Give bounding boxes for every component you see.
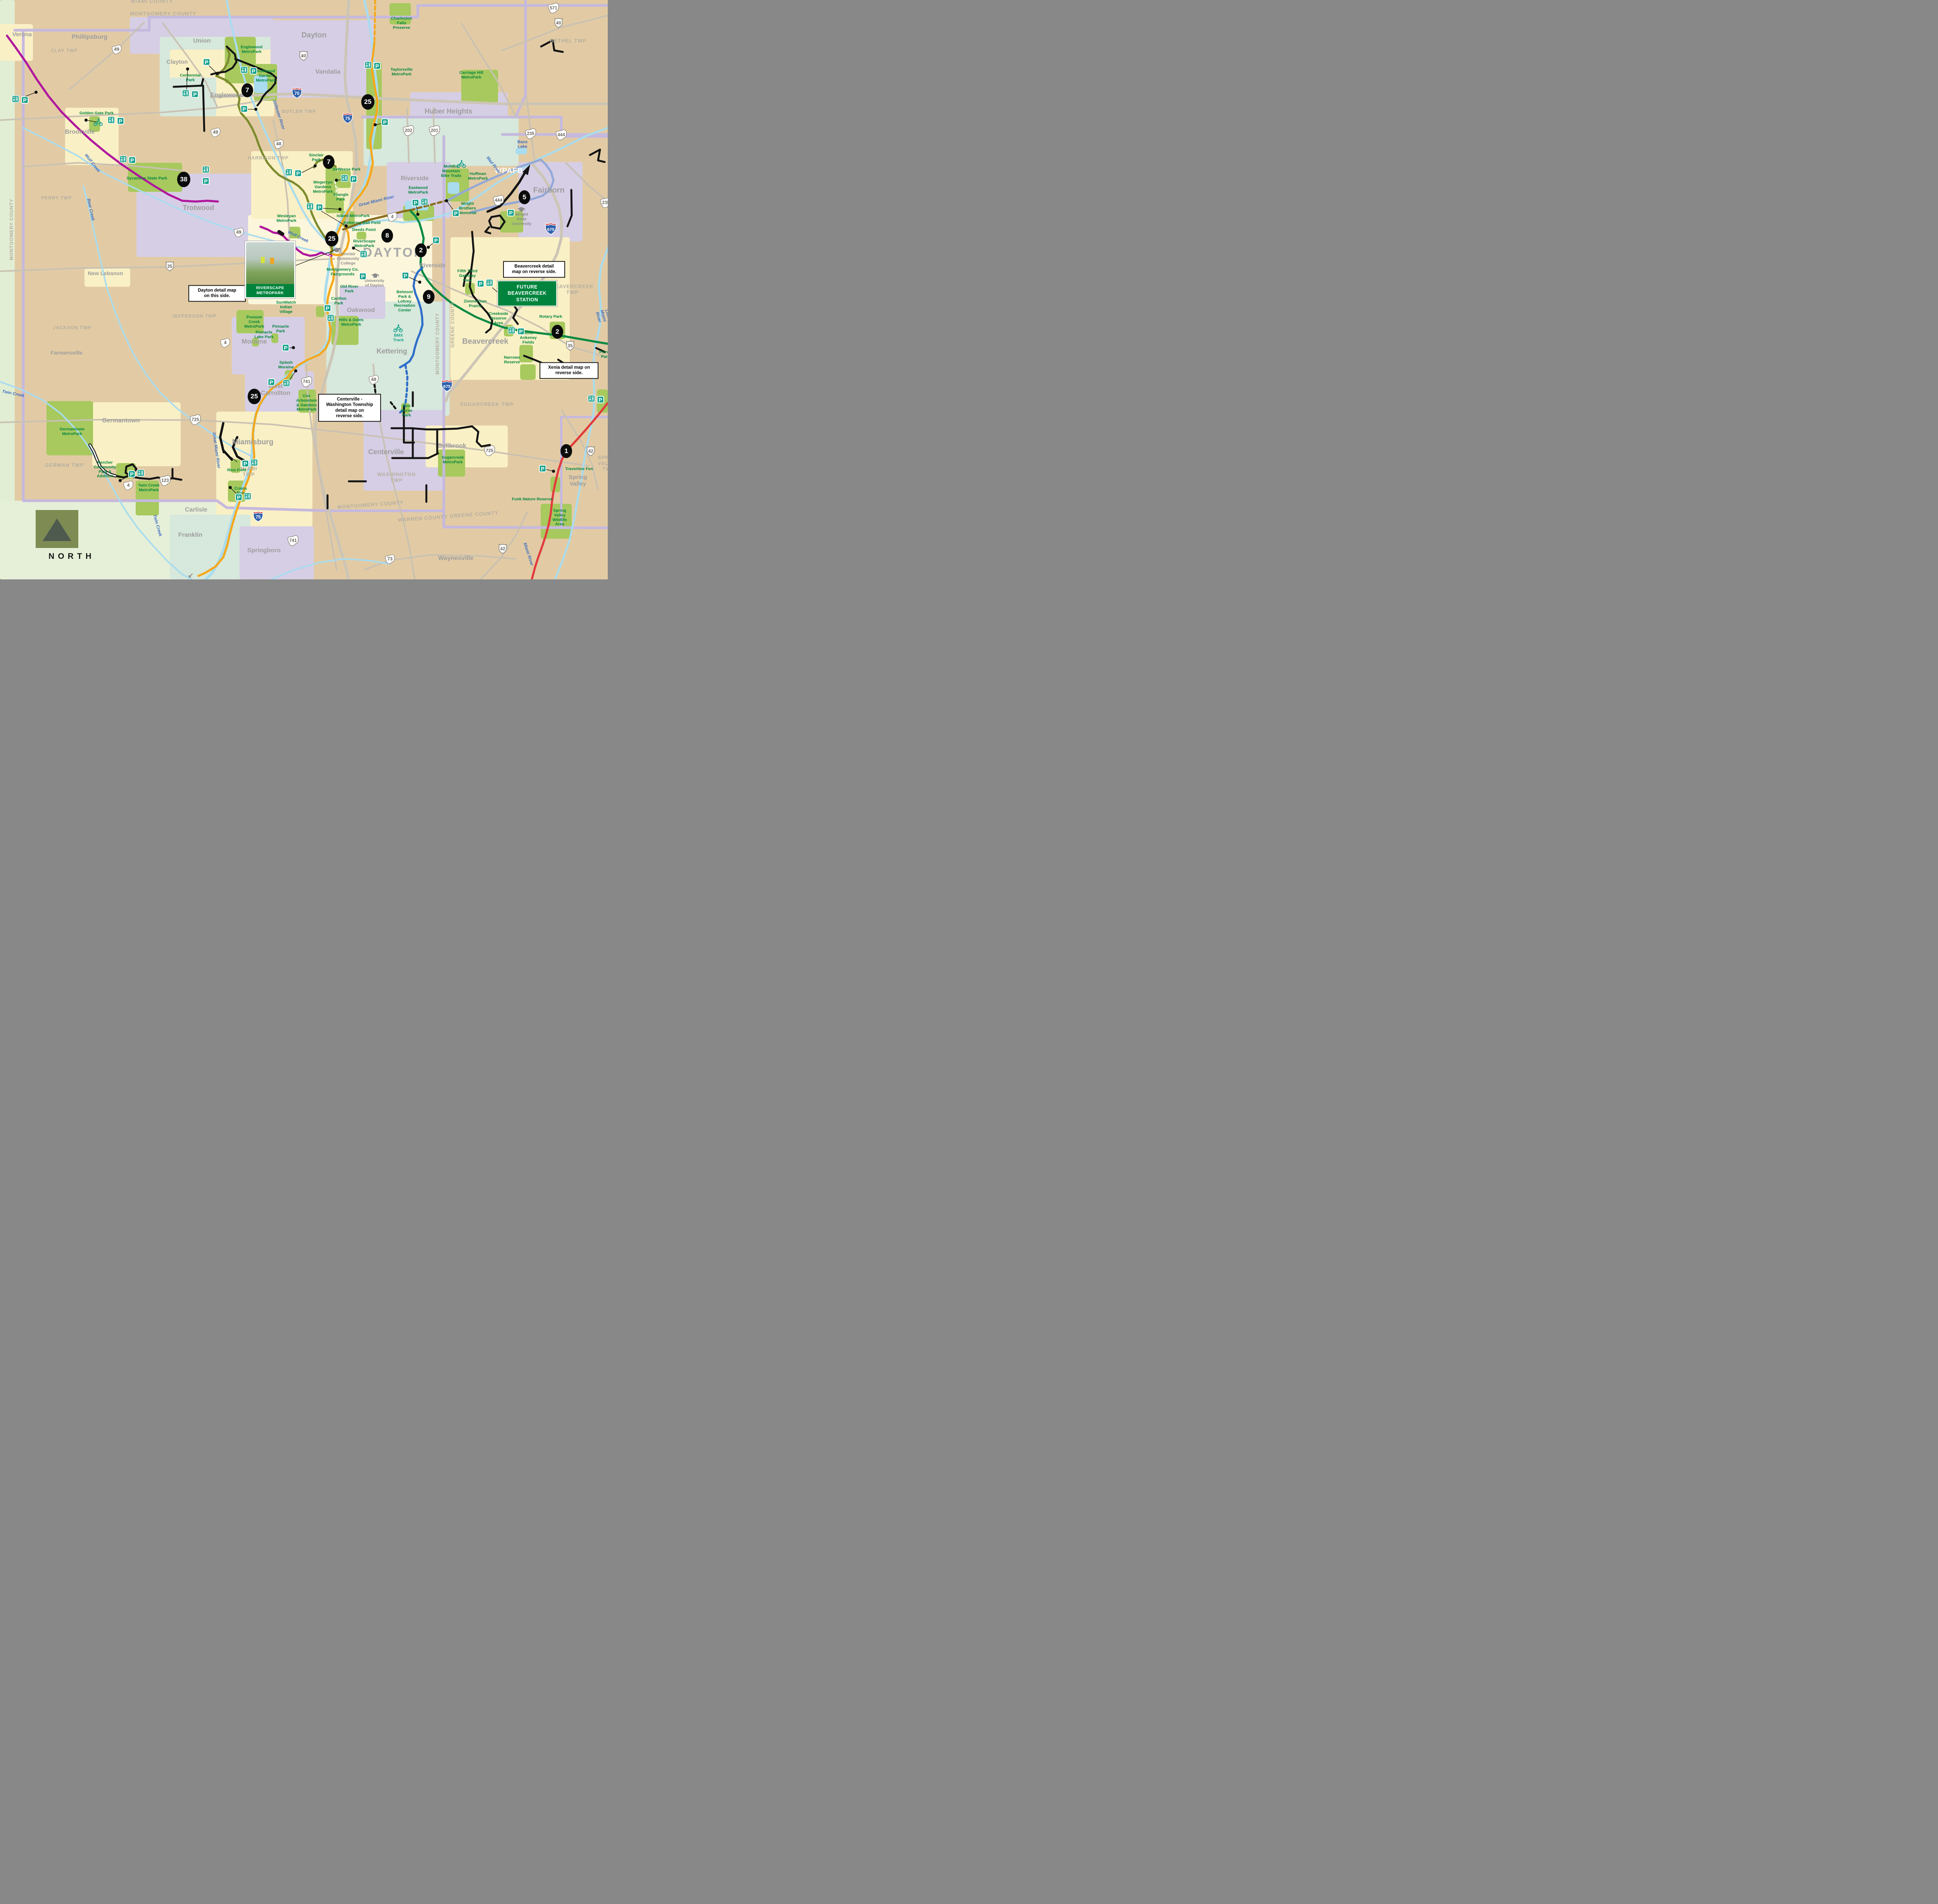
svg-text:4: 4 (224, 340, 227, 345)
trail-number-badge: 7 (241, 83, 253, 97)
map-line (172, 478, 181, 480)
svg-text:4: 4 (391, 214, 394, 219)
us-route-shield: 40 (298, 50, 309, 63)
region-patch (47, 401, 93, 455)
parking-icon: P (129, 157, 136, 164)
us-route-shield: 40 (553, 17, 564, 30)
trailhead-dot (418, 281, 421, 284)
svg-text:70: 70 (294, 91, 300, 96)
restroom-icon (108, 116, 115, 126)
state-route-shield: 73 (384, 553, 396, 567)
cyclist-figure (270, 258, 274, 264)
region-patch (92, 402, 181, 466)
state-route-shield: 49 (233, 226, 245, 240)
region-patch (136, 481, 159, 515)
trailhead-dot (416, 213, 419, 216)
parking-icon: P (203, 59, 210, 66)
parking-icon: P (477, 280, 484, 288)
parking-icon: P (359, 273, 367, 280)
trailhead-dot (292, 346, 295, 349)
state-route-shield: 201 (428, 124, 441, 139)
region-patch (316, 306, 324, 317)
trail-number-badge: 2 (415, 243, 427, 257)
svg-text:49: 49 (236, 229, 241, 235)
college-cap-icon (517, 207, 526, 214)
trailhead-dot (254, 108, 257, 111)
svg-text:75: 75 (345, 116, 350, 121)
trail-number-badge: 1 (560, 444, 572, 458)
parking-icon: P (374, 62, 381, 70)
parking-icon: P (324, 305, 331, 312)
interstate-shield: 675 (544, 221, 557, 237)
parking-icon: P (268, 379, 275, 386)
trail-number-badge: 9 (423, 290, 434, 304)
parking-icon: P (452, 210, 460, 217)
detail-map-note: Xenia detail map on reverse side. (540, 362, 598, 379)
state-route-shield: 48 (368, 374, 379, 387)
trailhead-dot (345, 224, 348, 227)
future-station-box: FUTURE BEAVERCREEK STATION (497, 281, 557, 307)
svg-text:4: 4 (127, 482, 130, 488)
restroom-icon (341, 174, 348, 184)
us-route-shield: 35 (164, 261, 175, 274)
svg-text:40: 40 (301, 53, 306, 59)
restroom-icon (120, 155, 127, 165)
restroom-icon (241, 66, 248, 76)
state-route-shield: 571 (547, 1, 560, 16)
region-patch (231, 459, 240, 473)
region-patch (450, 237, 570, 380)
state-route-shield: 4 (386, 211, 398, 224)
connect-middletown-note: ↙ CONNECT TO MIDDLETOWN (167, 567, 214, 579)
map-line (596, 348, 605, 352)
trail-number-badge: 5 (519, 190, 530, 204)
trailhead-dot (352, 246, 355, 250)
parking-icon: P (282, 344, 290, 352)
map-line (279, 232, 283, 234)
restroom-icon (283, 379, 290, 389)
trailhead-dot (294, 369, 297, 372)
trail-number-badge: 2 (552, 325, 563, 339)
svg-text:202: 202 (405, 128, 412, 133)
trailhead-dot (119, 479, 122, 482)
svg-text:235: 235 (527, 131, 535, 136)
restroom-icon (244, 493, 252, 502)
riverscape-photo: RIVERSCAPE METROPARK (245, 241, 295, 298)
trailhead-dot (338, 208, 341, 211)
map-line (203, 86, 204, 131)
detail-map-note: Dayton detail map on this side. (188, 285, 246, 302)
state-route-shield: 123 (159, 474, 172, 489)
state-route-shield: 741 (300, 375, 313, 390)
parking-icon: P (250, 67, 257, 75)
state-route-shield: 741 (286, 534, 300, 549)
interstate-shield: 75 (342, 112, 353, 126)
region-patch (357, 232, 366, 240)
region-patch (84, 268, 130, 287)
detail-map-note: Centerville - Washington Township detail… (318, 394, 381, 422)
parking-icon: P (128, 470, 136, 478)
restroom-icon (365, 61, 372, 71)
parking-icon: P (507, 209, 515, 217)
restroom-icon (12, 95, 19, 105)
svg-text:35: 35 (567, 343, 573, 348)
us-route-shield: 35 (565, 340, 576, 353)
restroom-icon (327, 314, 334, 324)
map-line (444, 511, 608, 528)
photo-caption: RIVERSCAPE METROPARK (246, 284, 294, 297)
svg-text:40: 40 (556, 20, 561, 26)
region-patch (520, 364, 536, 380)
trailhead-dot (229, 486, 232, 489)
parking-icon: P (316, 204, 323, 211)
region-patch (271, 333, 278, 343)
interstate-shield: 75 (252, 510, 264, 524)
us-route-shield: 42 (585, 446, 596, 458)
svg-text:35: 35 (167, 264, 172, 269)
region-patch (254, 76, 267, 93)
region-patch (519, 345, 533, 362)
region-patch (289, 227, 300, 238)
map-line (590, 150, 605, 162)
trail-number-badge: 8 (381, 229, 393, 243)
college-cap-icon (333, 247, 341, 255)
state-route-shield: 444 (492, 193, 505, 208)
region-patch (335, 198, 344, 213)
state-route-shield: 49 (111, 43, 122, 57)
state-route-shield: 444 (555, 128, 568, 143)
interstate-shield: 70 (291, 86, 303, 101)
region-patch (390, 3, 411, 24)
parking-icon: P (381, 119, 389, 126)
trailhead-dot (34, 91, 38, 94)
state-route-shield: 4 (219, 337, 231, 350)
parking-icon: P (539, 465, 547, 472)
map-line (485, 227, 490, 233)
mountain-bike-icon (393, 324, 403, 335)
svg-text:49: 49 (114, 47, 119, 52)
restroom-icon (251, 459, 258, 468)
trail-number-badge: 7 (323, 155, 334, 169)
trailhead-dot (84, 119, 88, 122)
parking-icon: P (242, 460, 249, 467)
mountain-bike-icon (456, 160, 466, 171)
restroom-icon (182, 90, 190, 99)
region-patch (438, 450, 465, 477)
trailhead-dot (445, 199, 448, 202)
svg-text:741: 741 (289, 538, 297, 543)
svg-text:725: 725 (191, 417, 199, 422)
trail-number-badge: 25 (248, 389, 261, 404)
svg-text:741: 741 (303, 379, 310, 384)
state-route-shield: 235 (524, 127, 537, 142)
map-line (541, 40, 563, 52)
parking-icon: P (21, 96, 29, 104)
restroom-icon (137, 469, 145, 479)
north-arrow (36, 510, 78, 548)
parking-icon: P (295, 170, 302, 177)
trailhead-dot (222, 450, 226, 453)
region-patch (252, 338, 259, 346)
svg-text:725: 725 (486, 448, 493, 453)
state-route-shield: 48 (273, 138, 284, 152)
state-route-shield: 4 (122, 479, 134, 493)
svg-text:675: 675 (443, 384, 451, 389)
trailhead-dot (427, 246, 430, 249)
region-patch (0, 0, 15, 579)
trailhead-dot (552, 470, 555, 473)
region-patch (271, 20, 374, 98)
svg-text:675: 675 (547, 227, 555, 232)
region-patch (236, 310, 264, 333)
parking-icon: P (433, 237, 440, 244)
trailhead-dot (374, 123, 377, 126)
state-route-shield: 725 (483, 444, 496, 459)
svg-text:75: 75 (255, 514, 261, 520)
svg-text:201: 201 (431, 128, 438, 133)
parking-icon: P (412, 199, 419, 207)
svg-text:48: 48 (371, 377, 376, 382)
cyclist-figure (261, 257, 265, 263)
region-patch (240, 526, 314, 579)
restroom-icon (508, 327, 516, 336)
southwest-arrow-icon: ↙ (167, 572, 214, 579)
svg-text:73: 73 (387, 556, 393, 562)
trail-number-badge: 25 (361, 94, 374, 110)
svg-text:123: 123 (161, 478, 169, 483)
svg-text:48: 48 (276, 141, 281, 146)
svg-text:42: 42 (588, 448, 593, 454)
trailhead-dot (314, 164, 317, 167)
svg-text:571: 571 (550, 6, 557, 10)
state-route-shield: 725 (189, 413, 202, 428)
svg-text:235: 235 (602, 200, 608, 205)
trail-map: VeronaPhillipsburgUnionClaytonEnglewoodD… (0, 0, 608, 579)
college-cap-icon (371, 273, 379, 281)
parking-icon: P (350, 176, 357, 183)
interstate-shield: 675 (440, 378, 453, 394)
parking-icon: P (202, 177, 210, 185)
parking-icon: P (117, 117, 124, 125)
svg-text:49: 49 (213, 129, 218, 135)
parking-icon: P (597, 396, 604, 403)
parking-icon: P (241, 105, 248, 113)
us-route-shield: 42 (497, 543, 508, 556)
restroom-icon (421, 198, 428, 207)
parking-icon: P (402, 272, 409, 279)
map-line (374, 0, 375, 43)
svg-text:42: 42 (500, 546, 505, 551)
state-route-shield: 49 (210, 126, 221, 140)
map-line (532, 403, 608, 579)
map-line (70, 22, 144, 89)
parking-icon: P (235, 494, 243, 501)
trail-number-badge: 25 (325, 231, 338, 246)
mountain-bike-icon (93, 118, 103, 129)
north-triangle (36, 510, 78, 548)
region-patch (448, 182, 459, 194)
trail-number-badge: 38 (177, 172, 190, 187)
restroom-icon (307, 203, 314, 212)
state-route-shield: 202 (402, 124, 415, 139)
detail-map-note: Beavercreek detail map on reverse side. (503, 261, 565, 278)
trailhead-dot (186, 67, 189, 71)
region-patch (340, 286, 385, 319)
svg-text:444: 444 (495, 198, 502, 203)
trailhead-dot (335, 179, 338, 182)
parking-icon: P (191, 91, 199, 98)
parking-icon: P (517, 328, 525, 335)
restroom-icon (202, 166, 210, 175)
restroom-icon (588, 395, 595, 404)
restroom-icon (486, 279, 493, 288)
region-patch (516, 148, 527, 154)
restroom-icon (285, 169, 293, 178)
trailhead-dot (216, 72, 219, 75)
svg-text:444: 444 (557, 133, 565, 137)
restroom-icon (360, 250, 367, 260)
state-route-shield: 235 (599, 196, 608, 211)
map-line (516, 0, 526, 117)
